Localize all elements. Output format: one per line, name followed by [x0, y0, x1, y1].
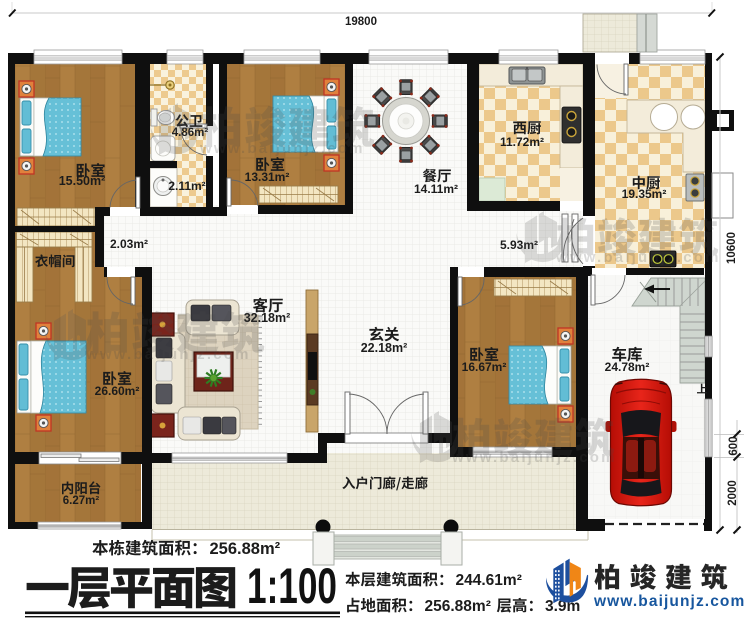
- svg-text:www.baijunjz.com: www.baijunjz.com: [593, 593, 745, 610]
- svg-text:14.11m²: 14.11m²: [414, 182, 458, 196]
- svg-text:2.11m²: 2.11m²: [168, 179, 205, 193]
- svg-text:1:100: 1:100: [247, 558, 337, 614]
- svg-text:www.baijunjz.com: www.baijunjz.com: [199, 140, 365, 157]
- svg-text:6.27m²: 6.27m²: [63, 495, 100, 507]
- svg-text:10600: 10600: [726, 232, 738, 264]
- svg-text:19.35m²: 19.35m²: [622, 187, 667, 201]
- svg-text:www.baijunjz.com: www.baijunjz.com: [555, 249, 721, 266]
- svg-text:16.67m²: 16.67m²: [462, 360, 507, 374]
- svg-text:2.03m²: 2.03m²: [110, 237, 148, 251]
- svg-text:26.60m²: 26.60m²: [95, 384, 140, 398]
- svg-text:19800: 19800: [345, 16, 377, 28]
- svg-text:256.88m²: 256.88m²: [210, 540, 281, 558]
- svg-text:244.61m²: 244.61m²: [456, 572, 522, 589]
- svg-text:2000: 2000: [727, 480, 739, 506]
- svg-text:www.baijunjz.com: www.baijunjz.com: [85, 346, 251, 363]
- svg-text:11.72m²: 11.72m²: [500, 135, 544, 149]
- svg-text:15.50m²: 15.50m²: [59, 174, 106, 188]
- svg-text:13.31m²: 13.31m²: [245, 170, 290, 184]
- svg-text:600: 600: [728, 436, 740, 455]
- svg-text:24.78m²: 24.78m²: [605, 360, 650, 374]
- svg-text:22.18m²: 22.18m²: [361, 341, 408, 355]
- svg-text:www.baijunjz.com: www.baijunjz.com: [451, 449, 617, 466]
- svg-text:256.88m²: 256.88m²: [425, 598, 491, 615]
